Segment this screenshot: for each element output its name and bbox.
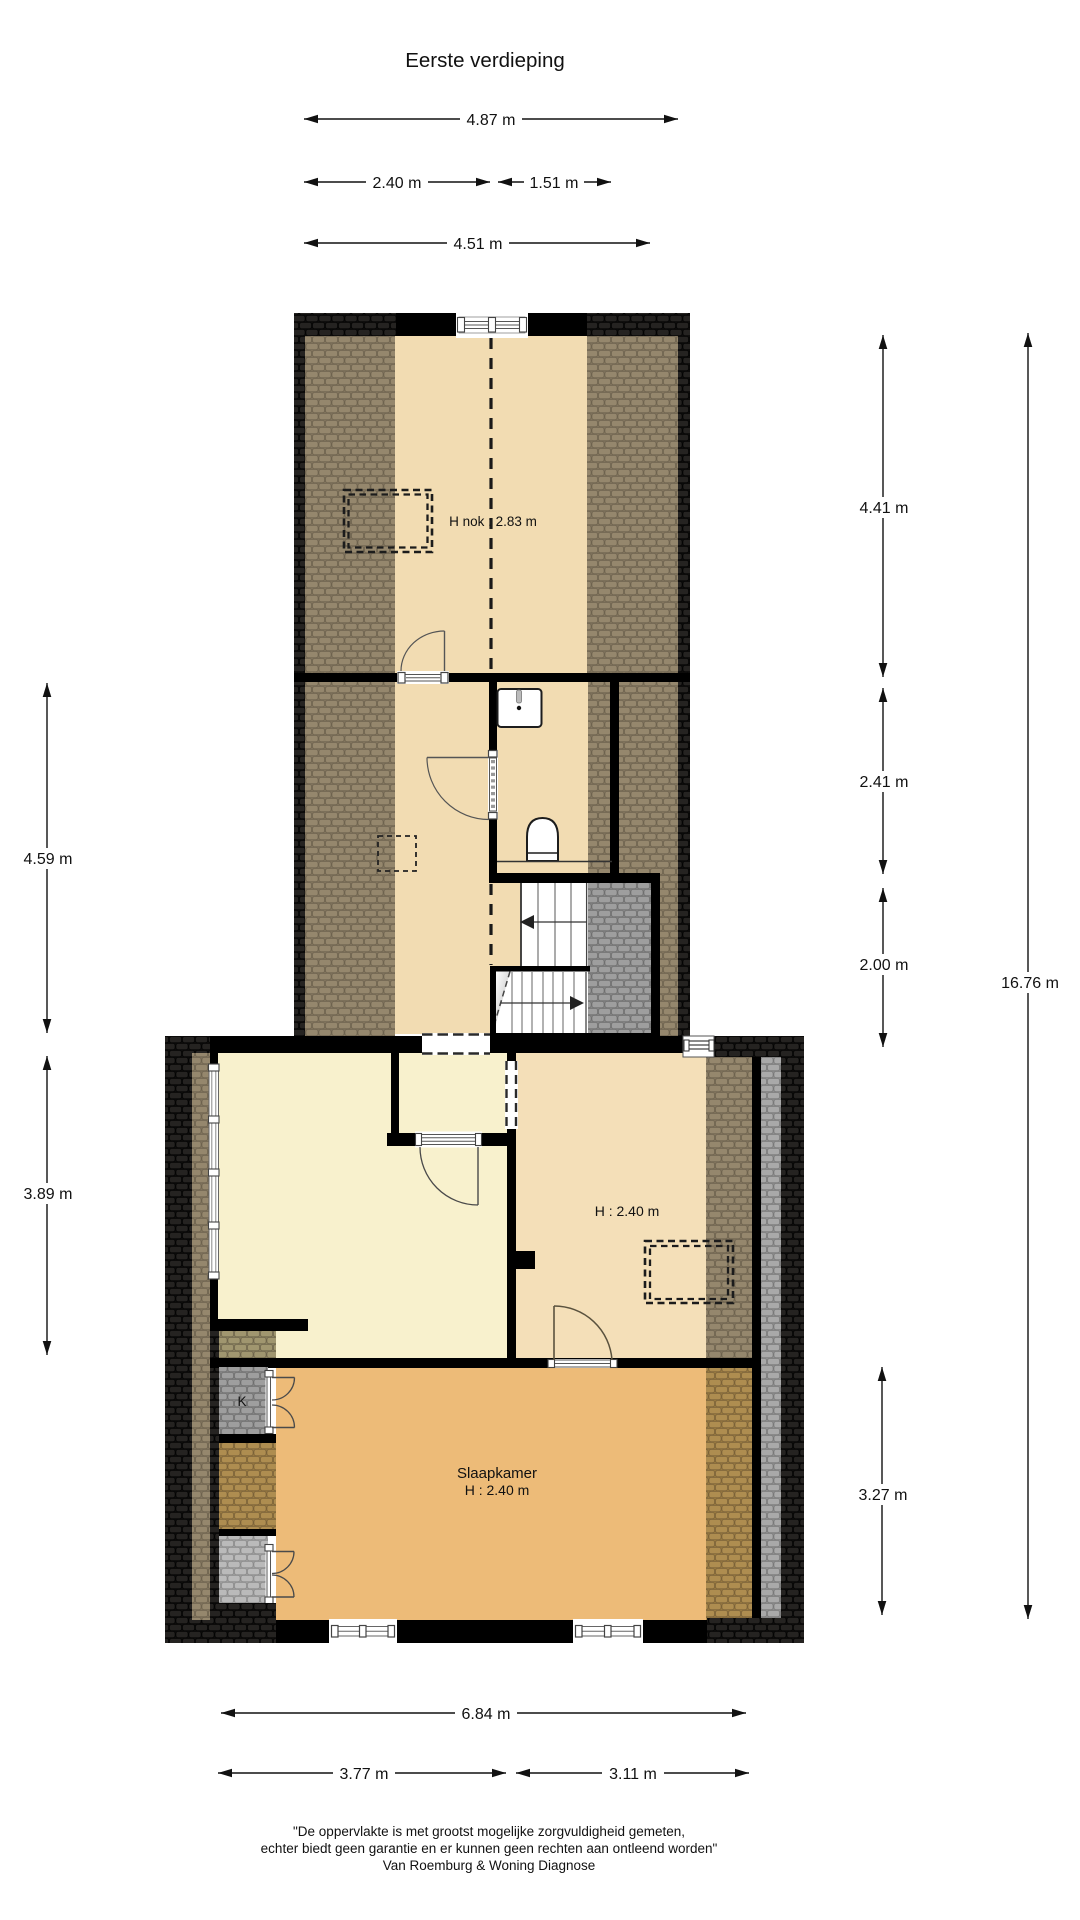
svg-text:3.11 m: 3.11 m	[609, 1766, 657, 1783]
svg-text:6.84 m: 6.84 m	[462, 1706, 511, 1723]
svg-text:2.00 m: 2.00 m	[860, 957, 909, 974]
svg-text:16.76 m: 16.76 m	[1001, 975, 1059, 992]
svg-text:4.51 m: 4.51 m	[454, 236, 503, 253]
svg-text:3.77 m: 3.77 m	[340, 1766, 389, 1783]
svg-text:K: K	[237, 1394, 246, 1409]
svg-text:2.41 m: 2.41 m	[860, 774, 909, 791]
svg-text:1.51 m: 1.51 m	[530, 175, 579, 192]
svg-text:"De oppervlakte is met grootst: "De oppervlakte is met grootst mogelijke…	[293, 1824, 685, 1839]
svg-text:4.87 m: 4.87 m	[467, 112, 516, 129]
svg-text:3.89 m: 3.89 m	[24, 1186, 73, 1203]
svg-text:Slaapkamer: Slaapkamer	[457, 1465, 537, 1482]
svg-text:4.59 m: 4.59 m	[24, 851, 73, 868]
svg-text:H : 2.40 m: H : 2.40 m	[465, 1482, 530, 1498]
svg-text:Van Roemburg & Woning Diagnose: Van Roemburg & Woning Diagnose	[383, 1858, 596, 1873]
svg-text:H nok : 2.83 m: H nok : 2.83 m	[449, 514, 537, 529]
svg-text:Eerste verdieping: Eerste verdieping	[405, 49, 565, 72]
svg-text:echter biedt geen garantie en: echter biedt geen garantie en er kunnen …	[261, 1841, 718, 1856]
svg-text:H : 2.40 m: H : 2.40 m	[595, 1203, 660, 1219]
svg-text:3.27 m: 3.27 m	[859, 1487, 908, 1504]
svg-text:2.40 m: 2.40 m	[373, 175, 422, 192]
svg-text:4.41 m: 4.41 m	[860, 500, 909, 517]
